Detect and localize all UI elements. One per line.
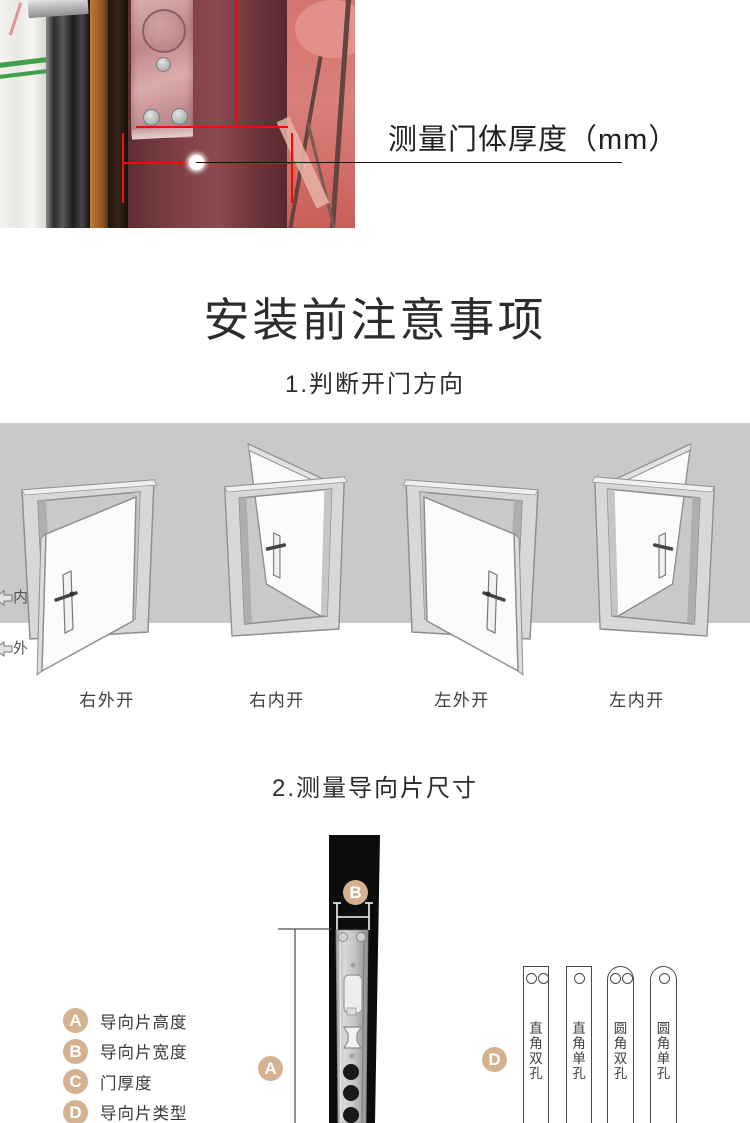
latch-bolt — [344, 975, 362, 1013]
door-thickness-photo — [0, 0, 355, 228]
cylinder-hole — [142, 9, 186, 53]
plate-hole — [526, 973, 537, 984]
plate-type-label: 圆角双孔 — [613, 1021, 628, 1081]
outer-side-label: 外 — [13, 640, 28, 657]
callout-line — [196, 162, 622, 163]
red-measure-tick-left — [122, 133, 124, 203]
legend-label-c: 门厚度 — [88, 1070, 153, 1094]
red-measure-line-vertical — [235, 0, 237, 125]
deadbolt-hole — [343, 1107, 359, 1123]
door-diagram-right-outward — [8, 440, 168, 675]
door-type-label: 左外开 — [412, 686, 512, 711]
plate-hole — [538, 973, 549, 984]
legend-label-a: 导向片高度 — [88, 1009, 188, 1033]
legend-key-c: C — [63, 1069, 88, 1094]
legend-key-d: D — [63, 1100, 88, 1123]
screw — [143, 109, 160, 126]
height-a-lines — [278, 929, 331, 1123]
latch-notch — [347, 1008, 356, 1015]
door-diagram-left-inward — [582, 437, 727, 672]
small-hole — [351, 963, 356, 968]
wood-trim — [90, 0, 108, 228]
outer-side-tag: 外 — [0, 637, 28, 660]
deadbolt-hole — [343, 1085, 359, 1101]
page-title: 安装前注意事项 — [0, 284, 750, 350]
legend: A 导向片高度 B 导向片宽度 C 门厚度 D 导向片类型 — [63, 1008, 188, 1123]
guide-plate-round-double: 圆角双孔 — [607, 966, 634, 1123]
chrome-edge — [46, 0, 90, 228]
marker-d: D — [482, 1047, 507, 1072]
legend-label-b: 导向片宽度 — [88, 1039, 188, 1063]
legend-row: C 门厚度 — [63, 1069, 188, 1094]
wrapped-frame — [0, 0, 46, 228]
page: 测量门体厚度（mm） 安装前注意事项 1.判断开门方向 — [0, 0, 750, 1123]
screw — [171, 108, 188, 125]
door-diagram-left-outward — [392, 440, 552, 675]
guide-plate-square-double: 直角双孔 — [523, 966, 549, 1123]
plate-hole — [574, 973, 585, 984]
legend-row: A 导向片高度 — [63, 1008, 188, 1033]
legend-row: D 导向片类型 — [63, 1100, 188, 1123]
red-measure-tick-right — [291, 133, 293, 203]
deadbolt-hole — [343, 1064, 359, 1080]
callout-label: 测量门体厚度（mm） — [388, 116, 678, 158]
lock-edge-diagram — [258, 830, 438, 1123]
door-type-label: 左内开 — [587, 686, 687, 711]
section1-heading: 1.判断开门方向 — [0, 364, 750, 399]
section2-heading: 2.测量导向片尺寸 — [0, 768, 750, 803]
plate-type-label: 圆角单孔 — [656, 1021, 671, 1081]
door-type-label: 右内开 — [227, 686, 327, 711]
left-arrow-icon — [0, 638, 13, 660]
left-arrow-icon — [0, 587, 13, 609]
faceplate-screw — [339, 933, 348, 942]
door-gap — [108, 0, 128, 228]
legend-label-d: 导向片类型 — [88, 1100, 188, 1123]
inner-side-label: 内 — [13, 589, 28, 606]
marker-a: A — [258, 1056, 283, 1081]
plate-hole — [659, 973, 670, 984]
legend-key-a: A — [63, 1008, 88, 1033]
red-measure-line-plate-bottom — [136, 126, 288, 128]
screw — [156, 57, 171, 72]
guide-plate-square-single: 直角单孔 — [566, 966, 592, 1123]
plate-type-label: 直角单孔 — [572, 1021, 587, 1081]
inner-side-tag: 内 — [0, 586, 28, 609]
door-type-label: 右外开 — [57, 686, 157, 711]
door-diagram-right-inward — [212, 437, 357, 672]
legend-key-b: B — [63, 1039, 88, 1064]
plate-hole — [610, 973, 621, 984]
marker-b: B — [343, 880, 368, 905]
faceplate-screw — [357, 933, 366, 942]
plate-hole — [622, 973, 633, 984]
legend-row: B 导向片宽度 — [63, 1039, 188, 1064]
small-hole — [350, 1054, 355, 1059]
guide-plate-round-single: 圆角单孔 — [650, 966, 677, 1123]
plate-type-label: 直角双孔 — [529, 1021, 544, 1081]
